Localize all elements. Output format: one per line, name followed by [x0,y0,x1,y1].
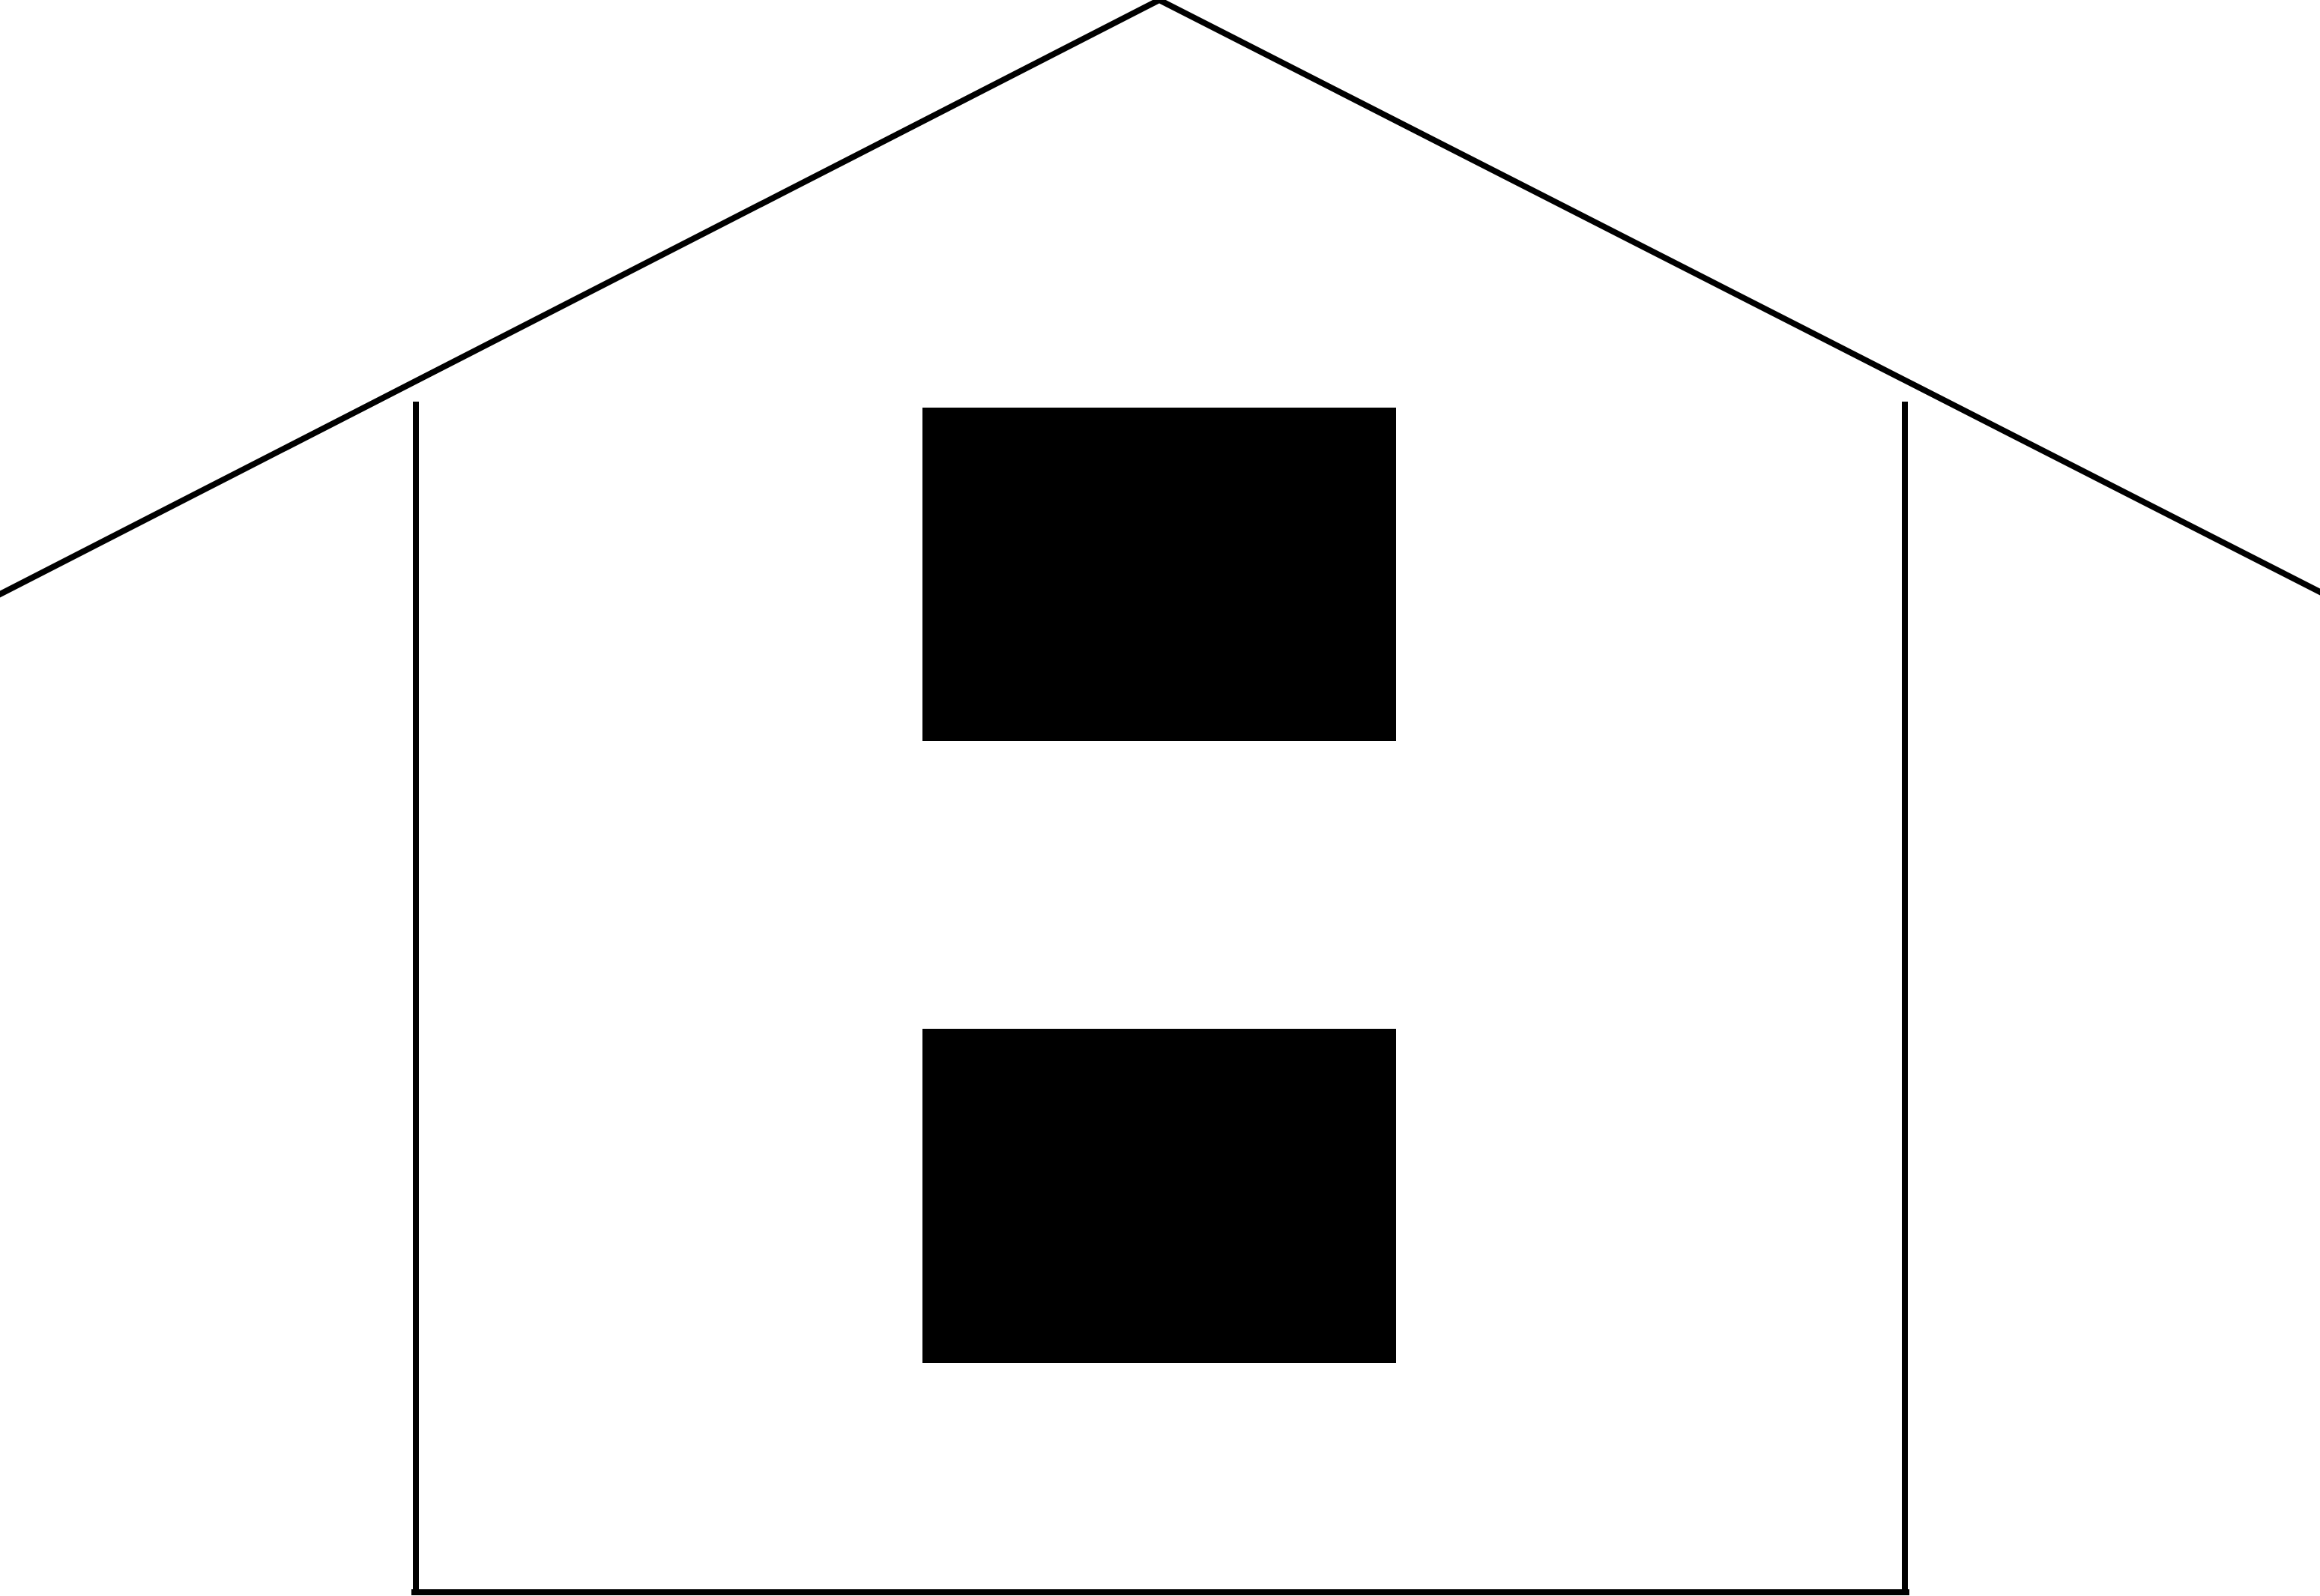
house-drawing-svg [0,0,2320,1596]
upper-window-rect [922,408,1396,741]
house-drawing-canvas [0,0,2320,1596]
lower-window-rect [922,1029,1396,1363]
